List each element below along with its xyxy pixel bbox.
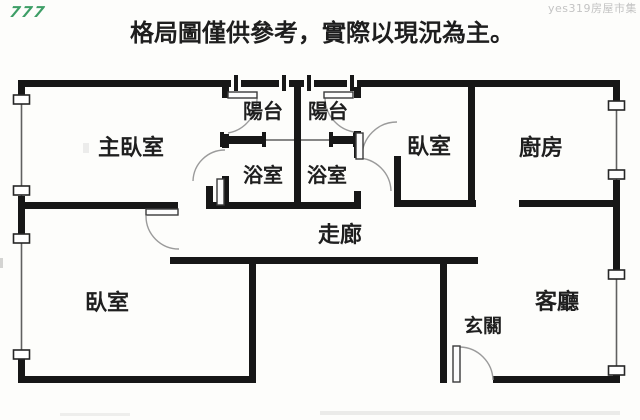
- room-label-bathroom-right: 浴室: [307, 163, 347, 187]
- room-label-kitchen: 廚房: [519, 135, 563, 161]
- wall-kitchen-bottom: [519, 200, 616, 207]
- window-tick-icon: [282, 75, 286, 91]
- window-icon: [609, 366, 625, 375]
- site-name-watermark: yes319房屋市集: [548, 1, 637, 15]
- room-label-balcony-left: 陽台: [243, 99, 283, 123]
- wall-bedroom-bl-bottom: [18, 376, 256, 383]
- wall-master-bottom: [18, 202, 178, 209]
- wall-hallway-south: [170, 257, 478, 264]
- door-arc-master-hall: [146, 216, 179, 249]
- floor-plan-drawing: 777 yes319房屋市集 格局圖僅供參考，實際以現況為主。: [0, 0, 640, 420]
- room-label-living-room: 客廳: [535, 289, 579, 315]
- room-label-balcony-right: 陽台: [308, 99, 348, 123]
- door-leaf-balcony-left: [228, 92, 257, 98]
- door-arc-bathroom-left: [193, 150, 225, 181]
- room-label-entryway: 玄關: [464, 314, 502, 337]
- room-label-bedroom-bottom-left: 臥室: [85, 290, 129, 316]
- wall-bedroom-bl-right: [249, 257, 256, 383]
- window-icon: [14, 234, 30, 243]
- window-icon: [14, 95, 30, 104]
- room-label-bathroom-left: 浴室: [243, 163, 283, 187]
- door-arc-entry: [460, 347, 493, 380]
- door-arc-bedroom-top-right: [362, 122, 397, 157]
- wall-bedroom-tr-right: [468, 80, 475, 207]
- wall-bedroom-tr-bottom: [394, 200, 476, 207]
- wall-top: [18, 80, 620, 87]
- door-leaf-entry: [453, 346, 460, 382]
- window-tick-icon: [307, 75, 311, 91]
- door-leaf-master-hall: [146, 209, 178, 215]
- window-icon: [609, 101, 625, 110]
- window-icon: [14, 350, 30, 359]
- window-tick-icon: [234, 75, 238, 91]
- window-tick-icon: [350, 75, 354, 91]
- wall-bedroom-tr-left-stub: [394, 156, 401, 207]
- wall-entry-left: [440, 257, 447, 383]
- window-icon: [609, 270, 625, 279]
- room-label-hallway: 走廊: [318, 222, 362, 248]
- wall-center-divider: [294, 80, 301, 209]
- page-title: 格局圖僅供參考，實際以現況為主。: [130, 19, 514, 47]
- door-leaf-bedroom-top-right: [356, 133, 363, 159]
- wall-living-bottom: [493, 376, 620, 383]
- door-arc-bathroom-right: [358, 158, 392, 191]
- window-icon: [609, 170, 625, 179]
- door-leaf-bathroom-left: [217, 179, 224, 205]
- room-label-bedroom-top-right: 臥室: [407, 134, 451, 160]
- door-leaf-balcony-right: [324, 92, 353, 98]
- wall-bath-bottom: [206, 202, 360, 209]
- floor-plan-page: 777 yes319房屋市集 格局圖僅供參考，實際以現況為主。: [0, 0, 640, 420]
- room-label-master-bedroom: 主臥室: [98, 135, 164, 161]
- window-icon: [14, 186, 30, 195]
- site-logo-watermark: 777: [8, 3, 47, 21]
